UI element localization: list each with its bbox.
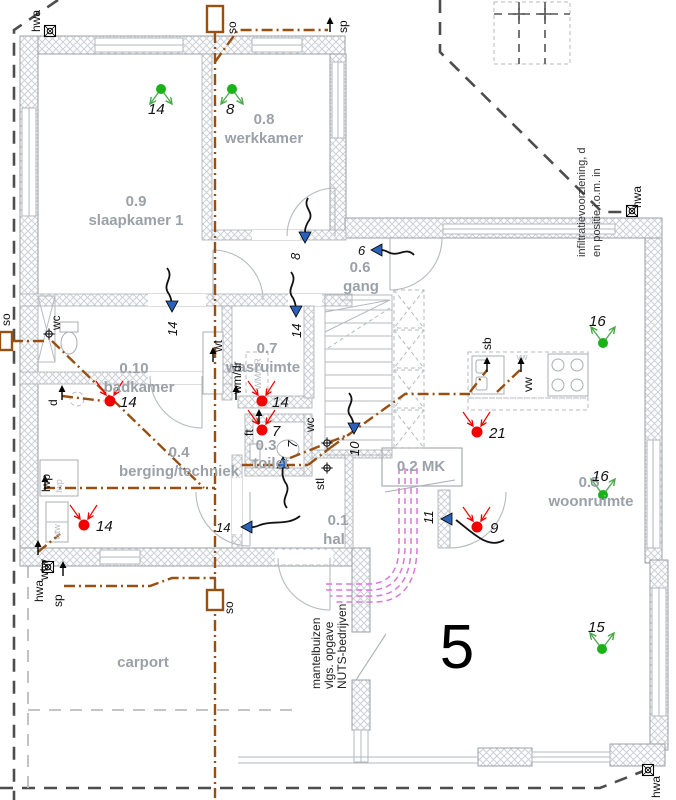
note-infiltration-line1: infiltratievoorziening, d xyxy=(576,148,588,257)
room-number-werkkamer: 0.8 xyxy=(254,111,275,128)
supply-vent-value: 16 xyxy=(592,468,609,485)
cooktop xyxy=(548,354,588,396)
transfer-value: 7 xyxy=(285,440,300,448)
so-label-top: so xyxy=(225,21,239,34)
room-number-slaapkamer: 0.9 xyxy=(126,193,147,210)
wmdr-unit-label: WM/DR xyxy=(253,358,263,390)
ft-label: ft xyxy=(242,429,256,436)
so-symbol-top xyxy=(207,6,223,32)
so-symbol-left xyxy=(0,332,12,350)
front-door-panel xyxy=(356,634,386,680)
supply-vent-value: 14 xyxy=(148,101,165,118)
room-name-werkkamer: werkkamer xyxy=(224,130,304,147)
wt-label: wt xyxy=(211,339,225,353)
note-mantelbuizen-line2: vlgs. opgave xyxy=(322,621,336,689)
extract-vent-value: 14 xyxy=(272,394,289,411)
room-number-berging: 0.4 xyxy=(169,444,191,461)
sp-label-bottomleft: sp xyxy=(51,594,65,607)
transfer-value: 11 xyxy=(421,511,436,525)
room-name-badkamer: badkamer xyxy=(104,379,175,396)
lwp-label: lwp xyxy=(39,474,53,492)
supply-vent-icon xyxy=(590,633,614,654)
room-number-wasruimte: 0.7 xyxy=(257,340,278,357)
so-label-left: so xyxy=(0,313,13,326)
transfer-value: 6 xyxy=(358,243,366,258)
wmdr-label: wm/dr xyxy=(230,361,244,395)
hwa-label-bottomleft: hwa xyxy=(32,580,46,602)
so-symbol-bottom xyxy=(207,590,223,610)
floor-plan-drawing: 0.9 slaapkamer 1 0.8 werkkamer 0.6 gang … xyxy=(0,0,676,800)
stl-connection-icon xyxy=(321,462,332,473)
room-number-meterkast: 0.2 MK xyxy=(397,458,446,475)
d-tap-icon xyxy=(59,385,66,400)
hwa-icon xyxy=(45,26,56,37)
note-mantelbuizen-line3: NUTS-bedrijven xyxy=(335,604,349,689)
extract-vent-icon xyxy=(463,412,490,438)
hwa-label-topleft: hwa xyxy=(29,10,43,32)
room-name-slaapkamer: slaapkamer 1 xyxy=(88,212,183,229)
hwa-icon xyxy=(643,765,654,776)
floor-plan-page: 0.9 slaapkamer 1 0.8 werkkamer 0.6 gang … xyxy=(0,0,676,800)
lwp-unit-label: lwp xyxy=(54,479,64,493)
sb-label: sb xyxy=(480,337,494,350)
extract-vent-value: 9 xyxy=(490,520,499,537)
sp-label-top: sp xyxy=(336,20,350,33)
supply-vent-icon xyxy=(591,327,615,348)
extract-vent-value: 21 xyxy=(488,425,506,442)
wtw-label: wtw xyxy=(37,559,51,581)
transfer-value: 10 xyxy=(347,441,362,456)
room-name-carport: carport xyxy=(117,654,169,671)
transfer-value: 8 xyxy=(288,252,303,260)
vw-label: vw xyxy=(521,377,535,392)
hwa-label-bottomright: hwa xyxy=(649,776,663,798)
extract-vent-value: 14 xyxy=(120,394,137,411)
supply-vent-value: 8 xyxy=(226,101,235,118)
extract-vent-value: 14 xyxy=(96,518,113,535)
room-name-hal: hal xyxy=(323,531,345,548)
extract-vent-value: 7 xyxy=(272,423,281,440)
transfer-value: 14 xyxy=(165,322,180,336)
room-name-gang: gang xyxy=(343,278,379,295)
shaft xyxy=(394,290,424,448)
room-name-berging: berging/techniek xyxy=(119,463,240,480)
room-number-badkamer: 0.10 xyxy=(119,360,148,377)
supply-vent-value: 16 xyxy=(589,313,606,330)
wc-label-toilet: wc xyxy=(303,417,317,433)
note-mantelbuizen-line1: mantelbuizen xyxy=(309,618,323,689)
wtw-unit-label: wtw xyxy=(52,524,62,541)
note-infiltration-line2: en positie i.o.m. in xyxy=(591,168,603,257)
carport-boundary xyxy=(28,566,300,796)
room-number-hal: 0.1 xyxy=(328,512,349,529)
so-label-bottom: so xyxy=(222,601,236,614)
transfer-value: 14 xyxy=(289,324,304,338)
supply-vent-value: 15 xyxy=(588,619,605,636)
d-label: d xyxy=(46,399,60,406)
infiltration-grid xyxy=(494,2,570,64)
stl-label: stl xyxy=(313,478,327,490)
staircase xyxy=(325,290,424,455)
wc-label-badkamer: wc xyxy=(49,315,63,331)
room-name-woonruimte: woonruimte xyxy=(548,493,634,510)
plot-number: 5 xyxy=(440,613,474,682)
room-number-gang: 0.6 xyxy=(350,259,371,276)
extract-vent-icon xyxy=(70,505,97,531)
vw-unit-label: vw xyxy=(517,352,529,362)
drain-d xyxy=(70,392,84,406)
room-name-toilet: toilet xyxy=(253,455,289,472)
hwa-label-topright: hwa xyxy=(630,186,644,208)
transfer-value: 14 xyxy=(216,520,230,535)
